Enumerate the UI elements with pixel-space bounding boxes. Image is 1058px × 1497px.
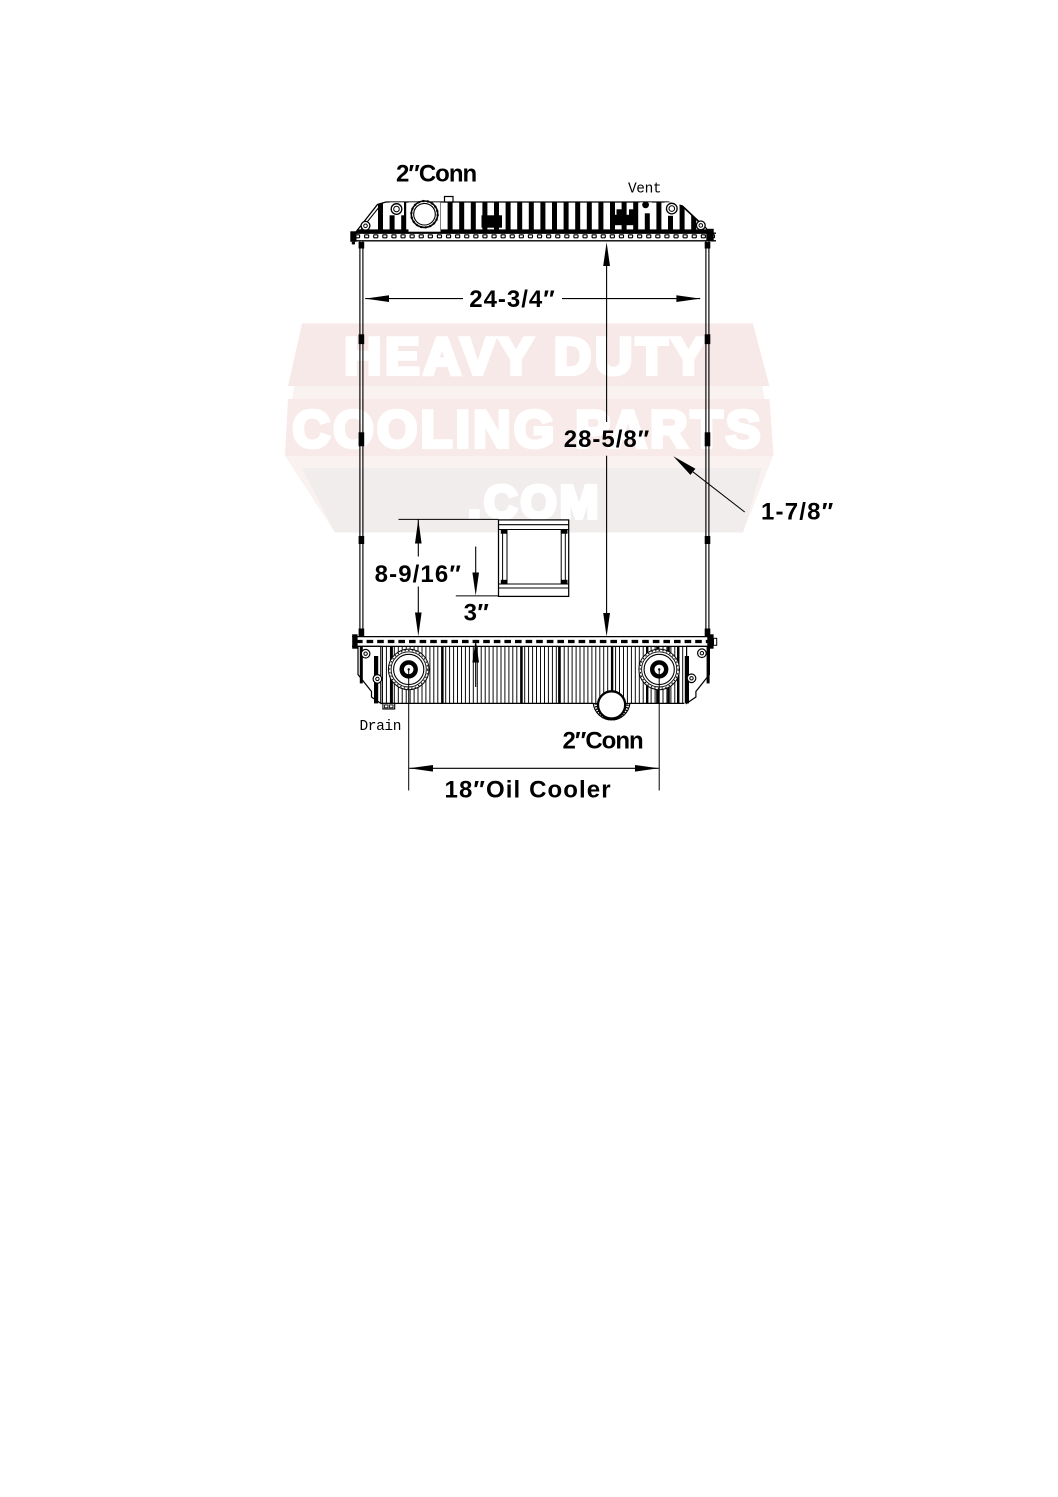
svg-text:3″: 3″ bbox=[464, 600, 490, 627]
svg-text:24-3/4″: 24-3/4″ bbox=[469, 286, 556, 313]
svg-text:Drain: Drain bbox=[360, 719, 402, 735]
svg-text:HEAVY DUTY: HEAVY DUTY bbox=[344, 328, 709, 386]
svg-text:8-9/16″: 8-9/16″ bbox=[375, 561, 462, 588]
svg-text:1-7/8″: 1-7/8″ bbox=[761, 499, 834, 526]
svg-text:28-5/8″: 28-5/8″ bbox=[564, 426, 651, 453]
svg-text:Vent: Vent bbox=[628, 182, 661, 198]
svg-text:18″Oil Cooler: 18″Oil Cooler bbox=[445, 777, 612, 804]
svg-text:2″Conn: 2″Conn bbox=[396, 161, 476, 188]
svg-text:2″Conn: 2″Conn bbox=[563, 728, 643, 755]
